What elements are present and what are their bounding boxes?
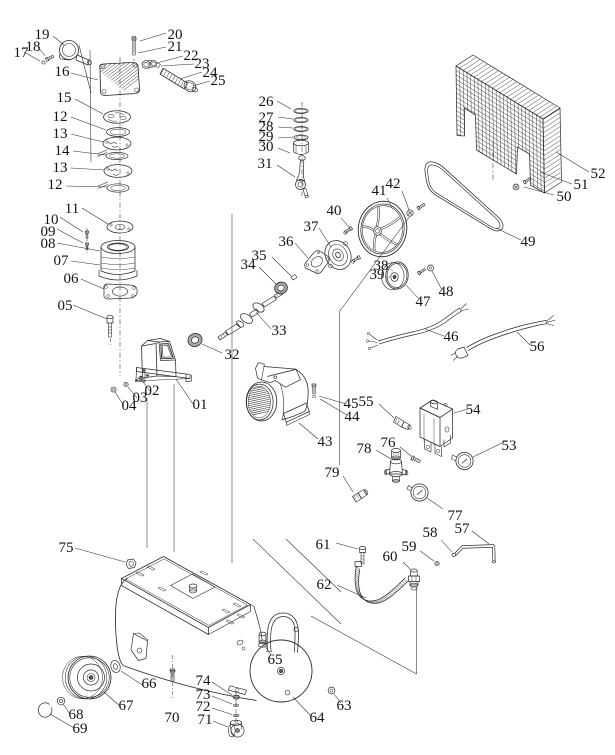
svg-text:49: 49 bbox=[521, 234, 536, 250]
svg-text:15: 15 bbox=[57, 90, 72, 106]
svg-text:47: 47 bbox=[416, 294, 432, 310]
svg-text:11: 11 bbox=[65, 201, 79, 217]
svg-text:61: 61 bbox=[316, 537, 331, 553]
svg-text:55: 55 bbox=[359, 394, 374, 410]
svg-text:07: 07 bbox=[54, 253, 70, 269]
svg-text:42: 42 bbox=[386, 176, 401, 192]
svg-text:50: 50 bbox=[557, 189, 572, 205]
svg-text:25: 25 bbox=[211, 73, 226, 89]
svg-text:79: 79 bbox=[325, 465, 340, 481]
svg-text:46: 46 bbox=[444, 329, 460, 345]
svg-text:65: 65 bbox=[268, 652, 283, 668]
svg-text:66: 66 bbox=[142, 676, 158, 692]
svg-text:21: 21 bbox=[168, 39, 183, 55]
svg-text:40: 40 bbox=[327, 203, 342, 219]
svg-text:57: 57 bbox=[455, 521, 471, 537]
svg-text:39: 39 bbox=[370, 267, 385, 283]
svg-text:13: 13 bbox=[53, 126, 68, 142]
svg-text:67: 67 bbox=[119, 698, 135, 714]
svg-text:44: 44 bbox=[345, 409, 361, 425]
svg-text:70: 70 bbox=[165, 710, 180, 726]
svg-text:51: 51 bbox=[574, 177, 589, 193]
svg-text:05: 05 bbox=[58, 298, 73, 314]
svg-text:53: 53 bbox=[502, 438, 517, 454]
svg-text:17: 17 bbox=[14, 45, 30, 61]
svg-text:13: 13 bbox=[53, 160, 68, 176]
svg-text:76: 76 bbox=[381, 435, 397, 451]
svg-text:12: 12 bbox=[48, 177, 63, 193]
svg-text:08: 08 bbox=[41, 236, 56, 252]
svg-text:26: 26 bbox=[259, 94, 275, 110]
svg-text:37: 37 bbox=[304, 219, 320, 235]
svg-text:62: 62 bbox=[317, 577, 332, 593]
svg-text:32: 32 bbox=[225, 347, 240, 363]
svg-text:30: 30 bbox=[259, 139, 274, 155]
svg-text:60: 60 bbox=[383, 549, 398, 565]
svg-text:01: 01 bbox=[193, 397, 208, 413]
svg-text:36: 36 bbox=[279, 234, 295, 250]
svg-text:78: 78 bbox=[357, 441, 372, 457]
svg-text:58: 58 bbox=[423, 525, 438, 541]
svg-text:69: 69 bbox=[73, 721, 88, 737]
svg-text:59: 59 bbox=[402, 539, 417, 555]
svg-text:06: 06 bbox=[64, 271, 80, 287]
svg-text:12: 12 bbox=[53, 109, 68, 125]
svg-text:64: 64 bbox=[310, 710, 326, 726]
svg-text:52: 52 bbox=[591, 166, 606, 182]
svg-text:14: 14 bbox=[55, 143, 71, 159]
svg-text:75: 75 bbox=[59, 540, 74, 556]
svg-text:54: 54 bbox=[466, 402, 482, 418]
svg-text:56: 56 bbox=[530, 339, 546, 355]
svg-text:31: 31 bbox=[258, 156, 273, 172]
svg-text:16: 16 bbox=[55, 64, 71, 80]
svg-text:35: 35 bbox=[252, 248, 267, 264]
svg-text:41: 41 bbox=[372, 183, 387, 199]
svg-text:72: 72 bbox=[196, 699, 211, 715]
svg-text:43: 43 bbox=[318, 434, 333, 450]
svg-text:33: 33 bbox=[272, 323, 287, 339]
svg-text:48: 48 bbox=[439, 284, 454, 300]
